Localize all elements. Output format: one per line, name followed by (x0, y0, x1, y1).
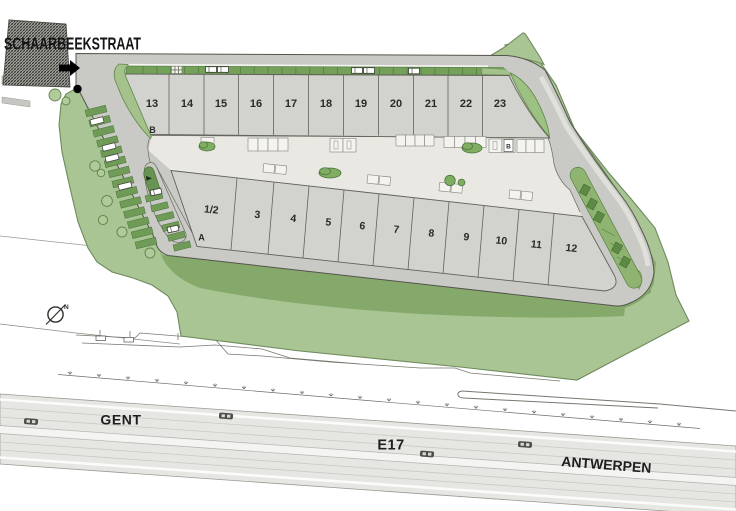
svg-text:20: 20 (390, 98, 402, 110)
svg-text:N: N (64, 304, 69, 311)
svg-text:12: 12 (565, 242, 578, 255)
svg-text:23: 23 (494, 98, 506, 110)
svg-text:GENT: GENT (100, 412, 141, 428)
svg-text:21: 21 (425, 98, 437, 110)
svg-text:15: 15 (215, 98, 227, 110)
svg-text:13: 13 (146, 98, 158, 110)
svg-text:SCHAARBEEKSTRAAT: SCHAARBEEKSTRAAT (4, 34, 141, 54)
svg-text:19: 19 (355, 98, 367, 110)
svg-text:B: B (506, 144, 511, 151)
svg-text:A: A (198, 233, 205, 243)
svg-text:16: 16 (250, 98, 262, 110)
svg-text:11: 11 (530, 238, 542, 251)
svg-text:17: 17 (285, 98, 297, 110)
svg-text:10: 10 (495, 234, 508, 247)
svg-text:1/2: 1/2 (203, 203, 219, 216)
svg-text:E17: E17 (377, 438, 404, 454)
svg-text:18: 18 (320, 98, 332, 110)
svg-text:14: 14 (181, 98, 194, 110)
svg-text:22: 22 (460, 98, 472, 110)
